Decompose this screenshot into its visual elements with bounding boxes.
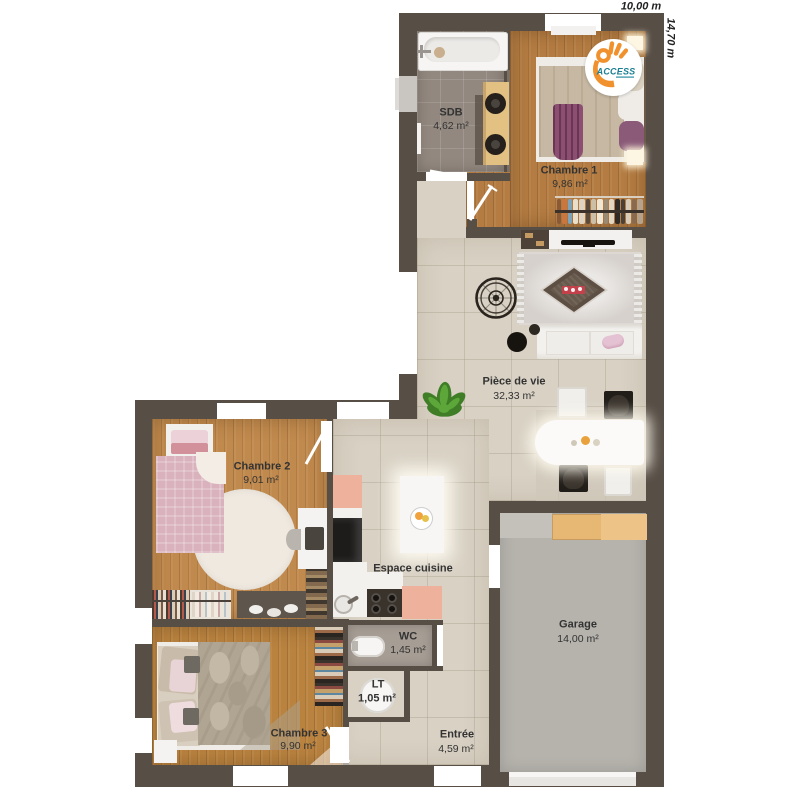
svg-text:ACCESS: ACCESS [596,67,636,77]
